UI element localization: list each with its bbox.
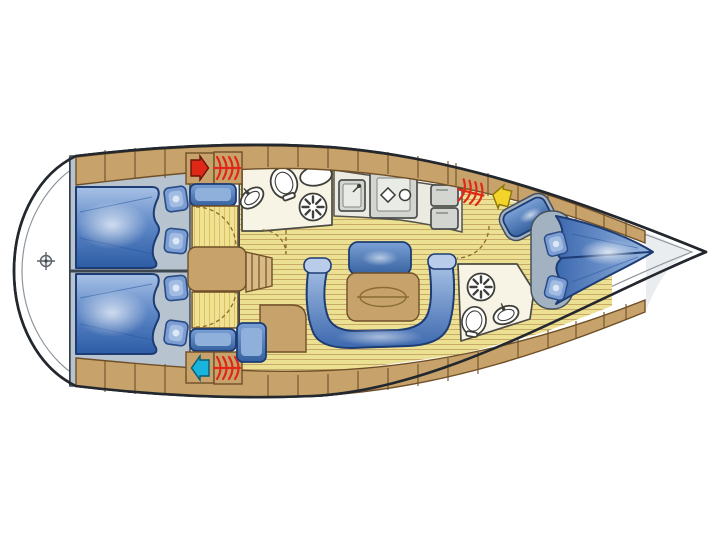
pillow xyxy=(164,275,188,301)
pillow xyxy=(544,231,569,257)
shower-fan-icon xyxy=(468,274,495,301)
settee-arm-cap-left xyxy=(304,258,331,273)
pillow xyxy=(163,320,188,347)
yacht-floorplan-diagram xyxy=(0,0,720,540)
pillow xyxy=(163,186,188,213)
fridge-box-top xyxy=(431,185,458,206)
fridge-box-bottom xyxy=(431,208,458,229)
vanity-basin-lower-inner xyxy=(195,333,231,346)
nav-seat-cushion xyxy=(241,328,262,356)
yacht-floorplan-canvas xyxy=(0,0,720,540)
wardrobe-lower xyxy=(192,292,238,328)
companionway-steps-base xyxy=(188,247,246,291)
pillow xyxy=(544,275,569,301)
pillow xyxy=(164,228,188,254)
settee-arm-cap-right xyxy=(428,254,456,269)
burner-round xyxy=(400,190,411,201)
vanity-basin-upper-inner xyxy=(195,188,231,201)
shower-fan-icon xyxy=(300,194,327,221)
